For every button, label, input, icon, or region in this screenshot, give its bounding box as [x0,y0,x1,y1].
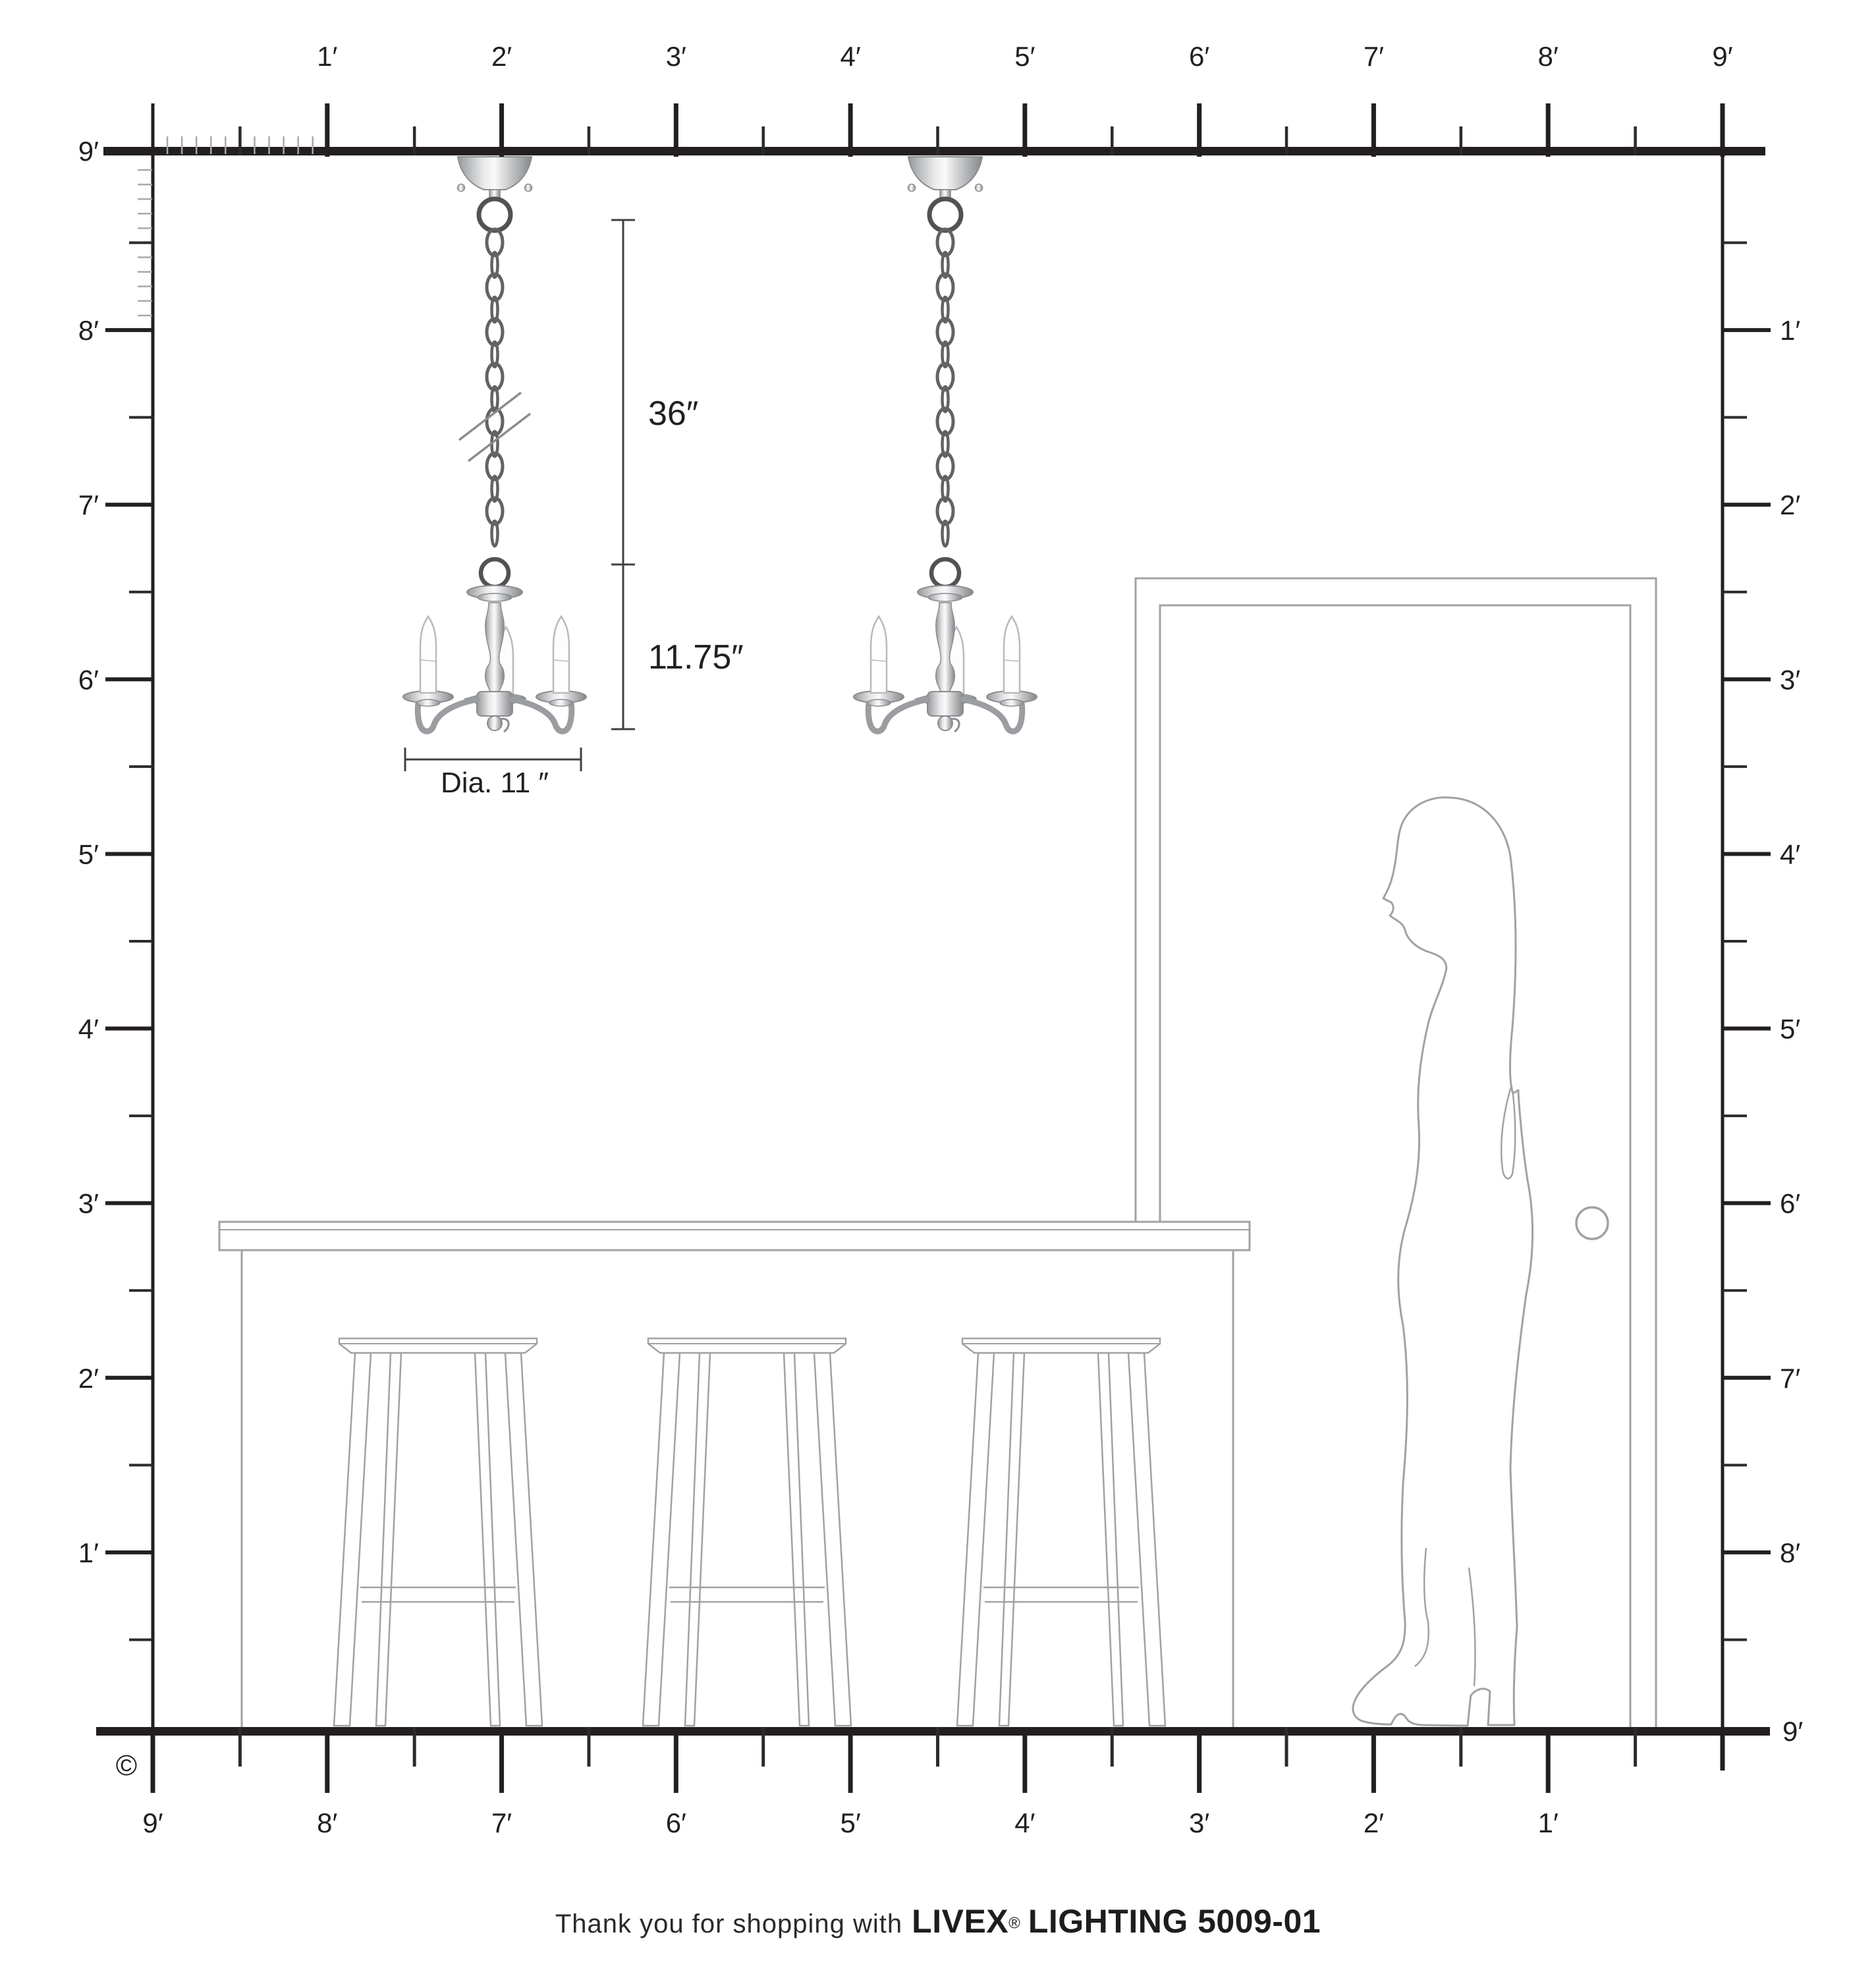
chandelier-right [854,157,1037,732]
counter-top-slab [219,1222,1250,1250]
registered-trademark-icon: ® [1008,1915,1020,1933]
copyright-symbol: © [116,1749,137,1782]
ruler-label-bottom-7ft: 7′ [491,1807,512,1838]
ruler-label-bottom-1ft: 1′ [1538,1807,1559,1838]
candle-cup-under [1000,700,1024,706]
center-column [485,603,505,692]
ruler-label-top-6ft: 6′ [1189,41,1209,72]
doorknob [1576,1207,1608,1239]
woman-outline [1353,798,1533,1726]
diagram-canvas: 36″11.75″Dia. 11 ″1′2′3′4′5′6′7′8′9′9′8′… [0,0,1876,1976]
candle [1004,617,1020,693]
ruler-label-bottom-4ft: 4′ [1014,1807,1035,1838]
bottom-ball [487,716,502,730]
ruler-label-top-7ft: 7′ [1364,41,1384,72]
dimension-label-chain-drop: 36″ [648,395,698,433]
ruler-label-right-8ft: 8′ [1780,1537,1800,1568]
canopy [458,157,532,190]
ruler-label-bottom-3ft: 3′ [1189,1807,1209,1838]
chandelier-left [403,157,586,732]
candle-cup-under [549,700,573,706]
ruler-label-top-5ft: 5′ [1014,41,1035,72]
footer-product: LIGHTING 5009-01 [1028,1903,1321,1940]
footer: Thank you for shopping withLIVEX®LIGHTIN… [0,1902,1876,1940]
chain [937,229,953,546]
candle [553,617,569,693]
center-column [936,603,955,692]
ceiling-bar [103,147,1765,155]
canopy-ball [525,184,532,192]
ruler-label-bottom-5ft: 5′ [840,1807,860,1838]
counter-island [219,1222,1250,1728]
candle-cup-under [867,700,891,706]
ruler-label-right-7ft: 7′ [1780,1363,1800,1394]
footer-thanks: Thank you for shopping with [555,1909,902,1938]
ruler-label-right-6ft: 6′ [1780,1188,1800,1219]
fixture-ring [931,559,959,587]
ruler-label-left-6ft: 6′ [78,664,99,695]
ruler-label-left-3ft: 3′ [78,1188,99,1219]
ruler-label-left-1ft: 1′ [78,1537,99,1568]
canopy-ball [976,184,983,192]
floor-bar [96,1727,1770,1736]
hook-ring [479,199,510,231]
ruler-label-bottom-9ft: 9′ [142,1807,163,1838]
ruler-label-right-2ft: 2′ [1780,489,1800,520]
top-bobeche-inner [478,593,512,601]
ruler-label-left-2ft: 2′ [78,1363,99,1394]
top-bobeche-inner [928,593,962,601]
right-ruler-line [1721,103,1724,1770]
stool-seat [962,1338,1160,1353]
ruler-label-right-9ft-floor: 9′ [1782,1716,1803,1747]
ruler-label-bottom-8ft: 8′ [317,1807,337,1838]
ruler-label-top-9ft: 9′ [1712,41,1732,72]
ruler-label-left-5ft: 5′ [78,838,99,869]
stool-seat [648,1338,846,1353]
candle [871,617,887,693]
ruler-label-top-3ft: 3′ [666,41,686,72]
canopy-ball [458,184,465,192]
ruler-label-left-8ft: 8′ [78,315,99,346]
ruler-label-right-1ft: 1′ [1780,315,1800,346]
canopy [908,157,982,190]
ruler-label-left-4ft: 4′ [78,1014,99,1045]
dimension-label-fixture-height: 11.75″ [648,638,744,676]
ruler-label-right-4ft: 4′ [1780,838,1800,869]
ruler-label-top-2ft: 2′ [491,41,512,72]
bottom-ball [938,716,952,730]
dimension-label-diameter: Dia. 11 ″ [441,767,549,799]
fixture-ring [481,559,509,587]
center-hub [927,692,963,716]
ruler-label-right-3ft: 3′ [1780,664,1800,695]
hook-ring [929,199,961,231]
scale-diagram: 36″11.75″Dia. 11 ″1′2′3′4′5′6′7′8′9′9′8′… [0,0,1876,1976]
ruler-label-bottom-2ft: 2′ [1364,1807,1384,1838]
candle-cup-under [416,700,440,706]
candle [420,617,436,693]
ruler-label-top-4ft: 4′ [840,41,860,72]
footer-brand: LIVEX [912,1903,1008,1940]
ruler-label-right-5ft: 5′ [1780,1014,1800,1045]
canopy-ball [908,184,916,192]
chain [487,229,503,546]
ruler-label-top-1ft: 1′ [317,41,337,72]
ruler-label-left-7ft: 7′ [78,489,99,520]
left-ruler-line [152,103,155,1793]
ruler-label-left-9ft: 9′ [78,136,99,167]
stool-seat [339,1338,537,1353]
ruler-label-top-8ft: 8′ [1538,41,1559,72]
woman-silhouette [1353,798,1533,1726]
center-hub [477,692,512,716]
ruler-label-bottom-6ft: 6′ [666,1807,686,1838]
